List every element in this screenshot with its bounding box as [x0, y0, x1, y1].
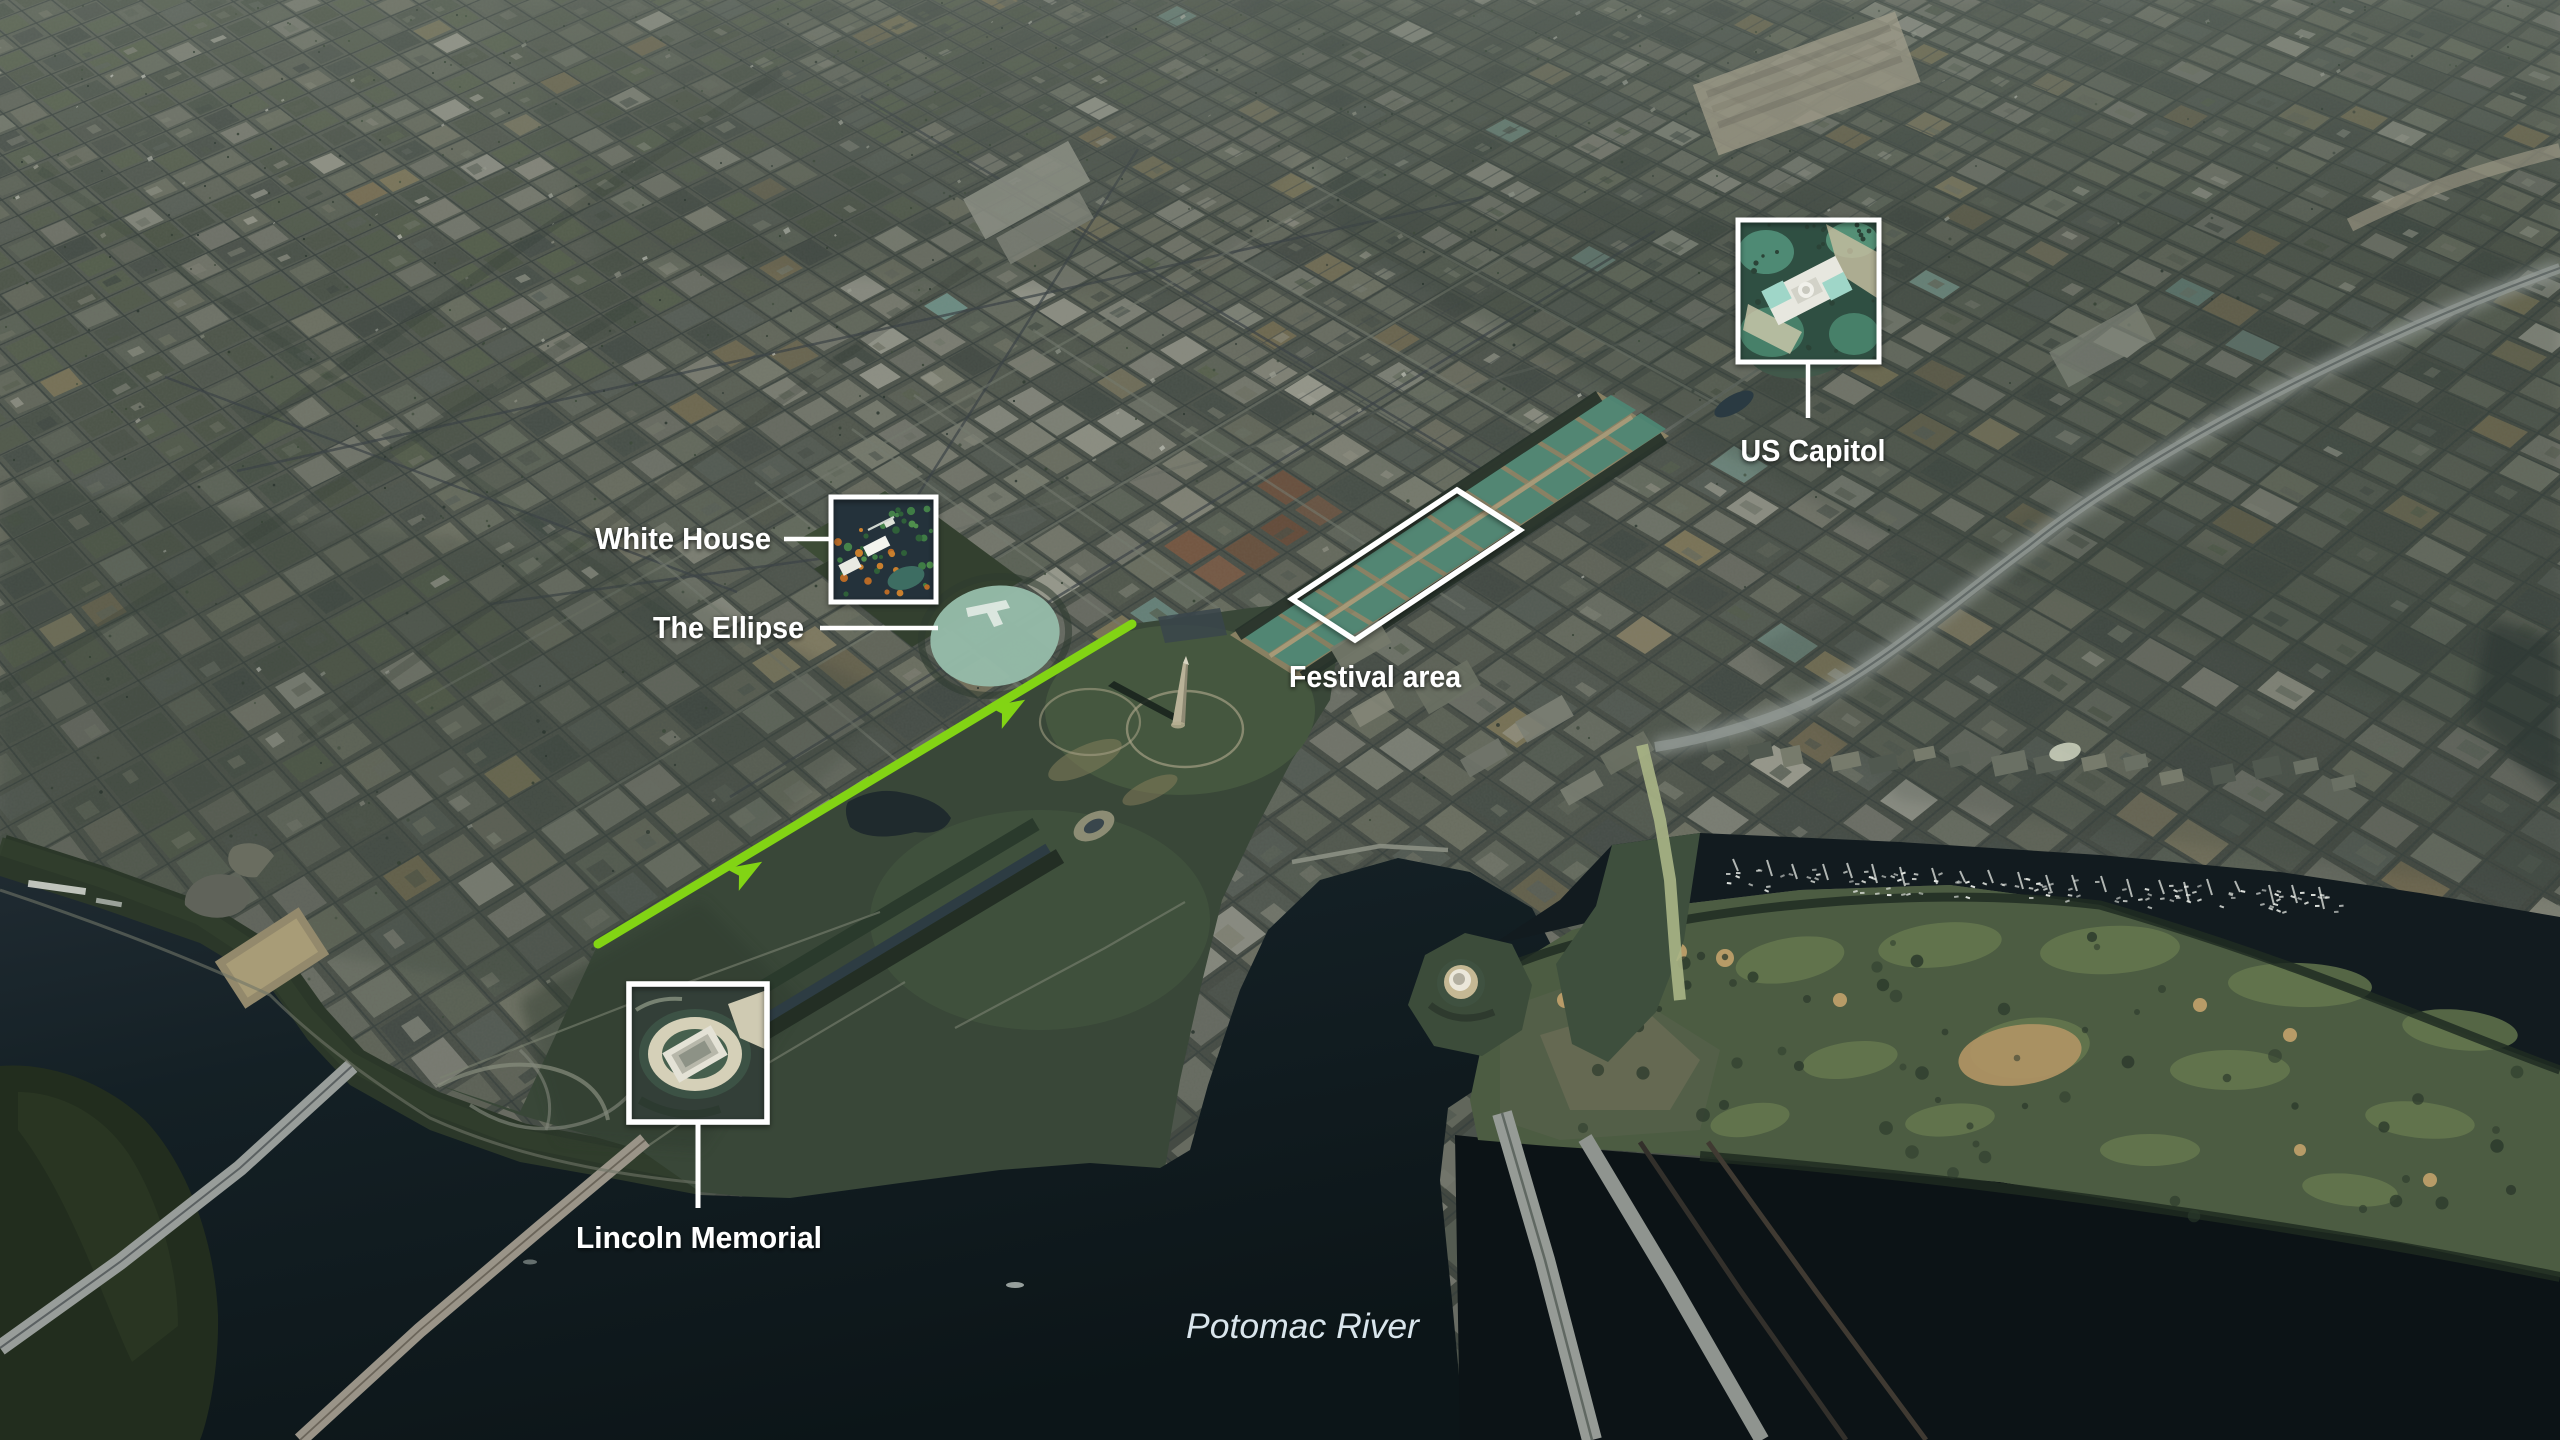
svg-text:Lincoln Memorial: Lincoln Memorial [576, 1220, 822, 1255]
svg-text:White House: White House [595, 521, 771, 556]
svg-text:Festival area: Festival area [1289, 659, 1462, 694]
svg-text:The Ellipse: The Ellipse [653, 610, 804, 645]
svg-text:Potomac River: Potomac River [1186, 1307, 1420, 1346]
svg-text:US Capitol: US Capitol [1741, 433, 1886, 468]
